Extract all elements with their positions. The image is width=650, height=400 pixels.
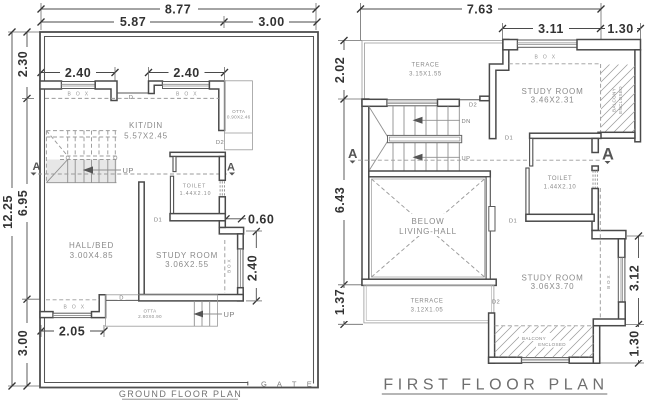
svg-text:7.63: 7.63	[467, 3, 493, 17]
svg-text:BELOW: BELOW	[412, 217, 445, 226]
svg-text:2.40: 2.40	[245, 255, 259, 281]
svg-text:GROUND FLOOR PLAN: GROUND FLOOR PLAN	[119, 389, 242, 399]
svg-text:ENCLOSED: ENCLOSED	[538, 342, 566, 347]
svg-text:OTTA: OTTA	[143, 308, 157, 313]
svg-text:1.44X2.10: 1.44X2.10	[180, 191, 212, 197]
svg-text:5.87: 5.87	[120, 15, 146, 29]
svg-text:1.37: 1.37	[333, 289, 347, 315]
svg-text:STUDY ROOM: STUDY ROOM	[156, 251, 218, 260]
svg-text:KIT/DIN: KIT/DIN	[129, 121, 163, 130]
svg-text:3.12X1.05: 3.12X1.05	[411, 308, 444, 314]
svg-text:1.30: 1.30	[628, 330, 642, 356]
svg-text:2.30: 2.30	[16, 51, 30, 77]
svg-text:2.40: 2.40	[173, 66, 199, 80]
svg-text:A: A	[348, 146, 358, 161]
svg-text:D1: D1	[509, 219, 517, 225]
svg-text:A: A	[227, 162, 235, 174]
svg-text:1.30: 1.30	[607, 22, 633, 36]
svg-text:B O X: B O X	[68, 91, 90, 97]
svg-text:TERACE: TERACE	[412, 63, 440, 69]
svg-text:HALL/BED: HALL/BED	[69, 241, 114, 250]
svg-text:B O X: B O X	[176, 91, 198, 97]
svg-text:FIRST FLOOR PLAN: FIRST FLOOR PLAN	[383, 377, 608, 394]
svg-text:D2: D2	[492, 300, 500, 306]
svg-text:6.95: 6.95	[16, 190, 30, 216]
svg-text:UP: UP	[462, 156, 471, 162]
svg-text:D1: D1	[505, 136, 513, 142]
svg-text:BALCONY: BALCONY	[522, 336, 546, 341]
svg-text:D2: D2	[469, 103, 477, 109]
svg-text:2.40: 2.40	[65, 66, 91, 80]
svg-text:0.60: 0.60	[248, 213, 274, 227]
svg-text:A: A	[602, 145, 614, 163]
svg-text:3.00: 3.00	[258, 15, 284, 29]
svg-text:A: A	[33, 161, 41, 173]
svg-text:B O X: B O X	[227, 259, 232, 273]
svg-text:DN: DN	[462, 119, 471, 125]
svg-text:TOILET: TOILET	[183, 184, 206, 190]
svg-text:B O X: B O X	[64, 305, 86, 311]
svg-text:UP: UP	[123, 166, 134, 175]
svg-text:3.11: 3.11	[538, 22, 564, 36]
svg-text:3.00X4.85: 3.00X4.85	[70, 251, 114, 260]
svg-text:D1: D1	[154, 218, 162, 224]
svg-text:OTTA: OTTA	[232, 109, 246, 114]
svg-text:12.25: 12.25	[1, 195, 15, 229]
svg-text:ENCLOSED: ENCLOSED	[618, 86, 623, 114]
svg-text:5.57X2.45: 5.57X2.45	[124, 132, 168, 141]
svg-text:3.46X2.31: 3.46X2.31	[531, 96, 575, 105]
svg-text:2.05: 2.05	[59, 325, 85, 339]
svg-text:BALCONY: BALCONY	[612, 88, 617, 112]
svg-text:8.77: 8.77	[165, 3, 191, 17]
svg-text:G A T E: G A T E	[261, 380, 316, 389]
svg-text:LIVING-HALL: LIVING-HALL	[399, 227, 457, 236]
svg-text:B O X: B O X	[606, 275, 611, 289]
svg-text:2.02: 2.02	[333, 57, 347, 83]
svg-text:TERRACE: TERRACE	[411, 299, 444, 305]
svg-text:3.06X3.70: 3.06X3.70	[531, 282, 575, 291]
svg-text:D2: D2	[216, 140, 224, 146]
svg-text:2.80X0.90: 2.80X0.90	[138, 314, 162, 319]
svg-text:D: D	[119, 296, 124, 302]
svg-text:B O X: B O X	[535, 55, 557, 61]
svg-text:3.15X1.55: 3.15X1.55	[409, 72, 442, 78]
svg-text:TOILET: TOILET	[548, 176, 573, 182]
svg-text:3.00: 3.00	[16, 330, 30, 356]
svg-text:UP: UP	[224, 310, 235, 319]
svg-text:6.43: 6.43	[333, 187, 347, 213]
svg-text:1.44X2.10: 1.44X2.10	[544, 185, 577, 191]
svg-text:3.12: 3.12	[628, 265, 642, 291]
svg-text:3.06X2.55: 3.06X2.55	[165, 260, 209, 269]
svg-text:0.90X2.46: 0.90X2.46	[227, 115, 251, 120]
